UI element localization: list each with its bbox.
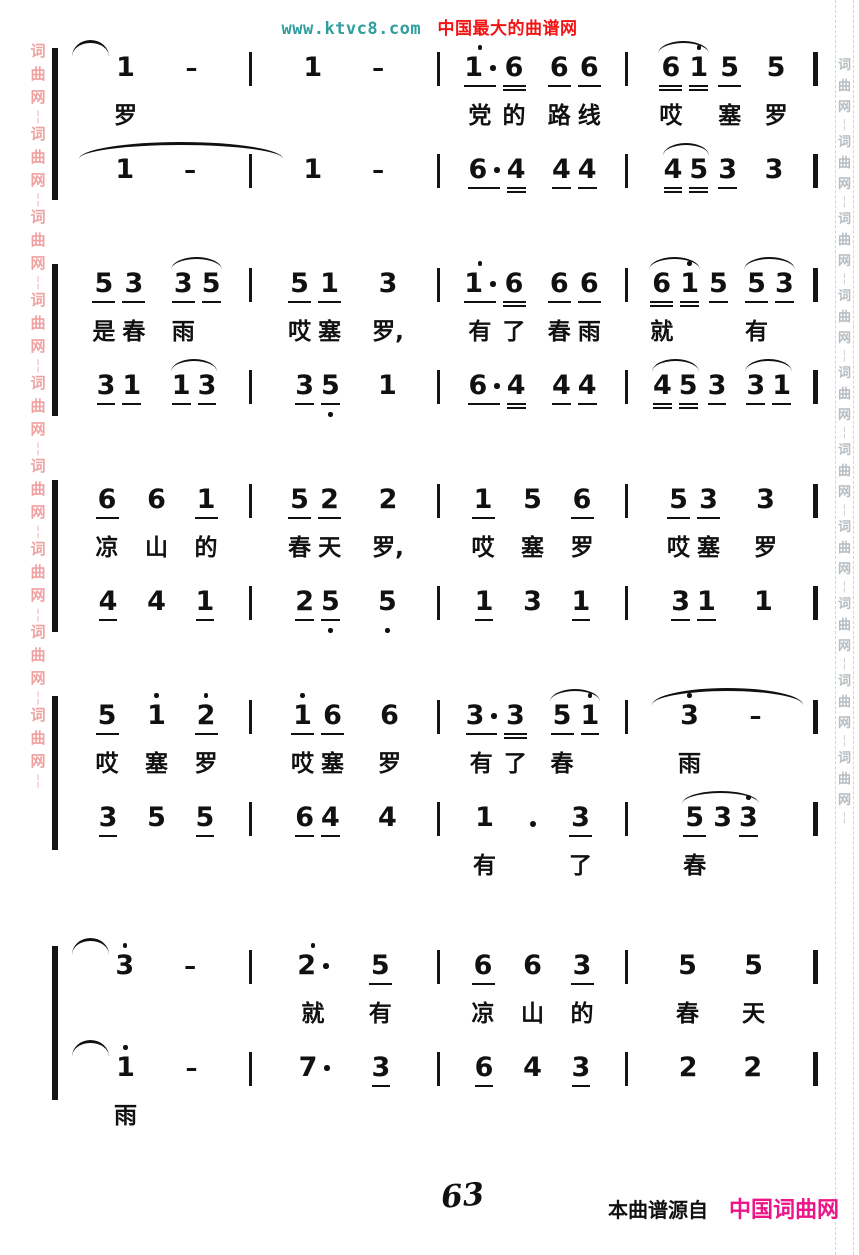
jianpu-note: 3 bbox=[775, 256, 794, 350]
jianpu-note: 5春 bbox=[683, 790, 706, 884]
slur-group: 5春3 3 bbox=[680, 790, 761, 884]
note-digit: 5 bbox=[689, 155, 708, 185]
watermark-char: 曲 bbox=[838, 153, 851, 174]
underline-zone bbox=[551, 731, 574, 740]
underline-zone bbox=[145, 731, 168, 740]
underline-zone bbox=[295, 617, 314, 626]
duration-underline bbox=[288, 517, 311, 520]
watermark-char: 曲 bbox=[838, 461, 851, 482]
lyric-syllable: 了 bbox=[503, 316, 526, 350]
note-digit bbox=[526, 803, 540, 833]
underline-zone bbox=[288, 515, 311, 524]
note-digit: 1 bbox=[572, 587, 591, 617]
underline-zone bbox=[521, 981, 544, 990]
measure: 1哎6塞6罗 bbox=[252, 688, 437, 782]
note-digit: 2 bbox=[320, 485, 339, 515]
underline-zone bbox=[680, 299, 699, 308]
duration-underline bbox=[679, 403, 698, 406]
note-number: 3 bbox=[739, 803, 758, 833]
duration-underline bbox=[503, 85, 526, 88]
beam-group: 1党6的 bbox=[461, 40, 528, 134]
measure: 6 4 4 bbox=[252, 790, 437, 884]
note-number: 5 bbox=[378, 587, 397, 617]
note-digit: 3 bbox=[713, 803, 732, 833]
note-number: 4 bbox=[523, 1053, 542, 1083]
note-number: 5 bbox=[523, 485, 542, 515]
measure: 5春3 3 bbox=[628, 790, 813, 884]
jianpu-note: 5 bbox=[378, 574, 397, 634]
underline-zone bbox=[295, 401, 314, 410]
octave-dot-above bbox=[300, 693, 305, 698]
jianpu-note: 5 bbox=[202, 256, 221, 350]
jianpu-note: 3塞 bbox=[697, 472, 720, 566]
jianpu-note: – bbox=[181, 938, 198, 1032]
jianpu-note: 6山 bbox=[145, 472, 168, 566]
jianpu-note: 5有 bbox=[369, 938, 392, 1032]
note-number: 1 bbox=[172, 371, 191, 401]
watermark-char: 词 bbox=[30, 538, 45, 561]
augmentation-dot bbox=[494, 383, 500, 389]
underline-zone bbox=[115, 981, 134, 990]
jianpu-note: 3 bbox=[739, 790, 758, 884]
duration-underline bbox=[504, 737, 527, 740]
lyric-syllable bbox=[528, 1100, 536, 1134]
note-number: 5 bbox=[98, 701, 117, 731]
duration-underline bbox=[572, 619, 591, 622]
underline-zone bbox=[318, 299, 341, 308]
jianpu-note: – bbox=[182, 1040, 199, 1134]
note-number: 3 bbox=[97, 371, 116, 401]
note-digit: 5 bbox=[290, 485, 309, 515]
note-number: 3 bbox=[718, 155, 737, 185]
watermark-char: 曲 bbox=[838, 307, 851, 328]
jianpu-note: 1 bbox=[572, 574, 591, 634]
note-number: 3 bbox=[372, 1053, 391, 1083]
lyric-syllable: 塞 bbox=[318, 316, 341, 350]
beam-group: 4 4 bbox=[549, 358, 600, 418]
watermark-separator: ¦ bbox=[842, 503, 846, 517]
note-digit: 1 bbox=[320, 269, 339, 299]
note-digit: 5 bbox=[371, 951, 390, 981]
lyric-syllable: 塞 bbox=[145, 748, 168, 782]
underline-zone bbox=[369, 83, 386, 92]
barline bbox=[813, 802, 818, 836]
dash-rest: – bbox=[184, 951, 194, 981]
underline-zone bbox=[754, 515, 777, 524]
measure: 6就1 5 5有3 bbox=[628, 256, 813, 350]
measure: 3 1 1 bbox=[628, 574, 813, 634]
note-number: 6 bbox=[468, 155, 487, 185]
octave-dot-above bbox=[478, 45, 483, 50]
upper-voice-line: 3 – 2就5有6凉6山3的5春5天 bbox=[64, 938, 818, 1032]
note-number: 6 bbox=[505, 269, 524, 299]
jianpu-note: 7 bbox=[299, 1040, 330, 1134]
note-digit: 3 bbox=[523, 587, 542, 617]
note-digit: 5 bbox=[321, 587, 340, 617]
duration-underline bbox=[503, 305, 526, 308]
duration-underline bbox=[472, 517, 495, 520]
footer-source-label: 本曲谱源自 bbox=[608, 1198, 708, 1222]
dash-rest: – bbox=[372, 155, 382, 185]
upper-voice-line: 5哎1塞2罗1哎6塞6罗3有3了5春1 3雨– bbox=[64, 688, 818, 782]
note-number: 1 bbox=[197, 485, 216, 515]
watermark-char: 网 bbox=[30, 86, 45, 109]
lyric-syllable: 的 bbox=[195, 532, 218, 566]
augmentation-dot bbox=[324, 1065, 330, 1071]
underline-zone bbox=[709, 299, 728, 308]
lyric-syllable bbox=[695, 100, 703, 134]
note-number: 5 bbox=[196, 803, 215, 833]
note-number: 5 bbox=[689, 155, 708, 185]
duration-underline bbox=[507, 191, 526, 194]
underline-zone bbox=[572, 1083, 591, 1092]
note-number: 5 bbox=[147, 803, 166, 833]
watermark-char: 词 bbox=[30, 455, 45, 478]
measure: 6凉6山1的 bbox=[64, 472, 249, 566]
underline-zone bbox=[96, 731, 119, 740]
watermark-char: 词 bbox=[30, 621, 45, 644]
note-digit: 5 bbox=[678, 951, 697, 981]
note-digit: 3 bbox=[671, 587, 690, 617]
jianpu-note: 4 bbox=[99, 574, 118, 634]
underline-zone bbox=[196, 833, 215, 842]
note-number: 4 bbox=[578, 371, 597, 401]
watermark-separator: ¦ bbox=[35, 358, 40, 372]
lyric-syllable bbox=[201, 850, 209, 884]
octave-dot-below bbox=[328, 628, 333, 633]
note-number: 2 bbox=[295, 587, 314, 617]
underline-zone bbox=[378, 401, 397, 410]
jianpu-note: 2就 bbox=[297, 938, 328, 1032]
note-number: 4 bbox=[99, 587, 118, 617]
lyric-syllable: 罗 bbox=[378, 748, 401, 782]
octave-dot-above bbox=[154, 693, 159, 698]
note-digit: 1 bbox=[147, 701, 166, 731]
jianpu-note: 4 bbox=[378, 790, 397, 884]
lyric-syllable bbox=[373, 100, 381, 134]
jianpu-note: 5哎 bbox=[667, 472, 690, 566]
note-digit: – bbox=[750, 701, 760, 731]
note-digit: 2 bbox=[297, 951, 328, 981]
dash-rest: – bbox=[186, 53, 196, 83]
watermark-char: 网 bbox=[838, 559, 851, 580]
note-number: 6 bbox=[523, 951, 542, 981]
note-digit: 3 bbox=[775, 269, 794, 299]
lyric-syllable: 有 bbox=[369, 998, 392, 1032]
note-digit: 1 bbox=[122, 371, 141, 401]
note-digit: 3 bbox=[124, 269, 143, 299]
underline-zone bbox=[196, 617, 215, 626]
lyric-syllable bbox=[383, 850, 391, 884]
dash-rest: – bbox=[750, 701, 760, 731]
slur-group: 6就1 bbox=[647, 256, 702, 350]
note-digit: 1 bbox=[303, 155, 322, 185]
duration-underline bbox=[472, 983, 495, 986]
jianpu-note: 5塞 bbox=[718, 40, 741, 134]
note-number: 3 bbox=[523, 587, 542, 617]
underline-zone bbox=[172, 401, 191, 410]
note-number: 5 bbox=[321, 371, 340, 401]
lyric-syllable: 罗 bbox=[195, 748, 218, 782]
duration-underline bbox=[708, 403, 727, 406]
note-number: 6 bbox=[550, 269, 569, 299]
underline-zone bbox=[708, 401, 727, 410]
jianpu-note: 3有 bbox=[466, 688, 497, 782]
music-system-3: 6凉6山1的5春2天2罗,1哎5塞6罗5哎3塞3罗4 4 1 2 5 5 1 3… bbox=[52, 472, 818, 634]
note-number: 5 bbox=[679, 371, 698, 401]
watermark-left: 词曲网¦词曲网¦词曲网¦词曲网¦词曲网¦词曲网¦词曲网¦词曲网¦词曲网¦ bbox=[27, 40, 49, 1247]
note-digit: 3 bbox=[699, 485, 718, 515]
duration-underline bbox=[99, 835, 118, 838]
note-digit: 1 bbox=[754, 587, 773, 617]
underline-zone bbox=[468, 401, 499, 410]
watermark-char: 网 bbox=[30, 169, 45, 192]
note-number: 1 bbox=[464, 269, 483, 299]
jianpu-note: 3 bbox=[713, 790, 732, 884]
watermark-char: 曲 bbox=[838, 76, 851, 97]
note-digit: 5 bbox=[94, 269, 113, 299]
lyric-syllable: 雨 bbox=[114, 1100, 137, 1134]
note-digit: 4 bbox=[99, 587, 118, 617]
jianpu-note: 5 bbox=[321, 358, 340, 418]
lyric-syllable: 雨 bbox=[578, 316, 601, 350]
note-number: 3 bbox=[699, 485, 718, 515]
jianpu-note: 5春 bbox=[288, 472, 311, 566]
lyric-syllable: 哎 bbox=[659, 100, 682, 134]
note-digit: 3 bbox=[174, 269, 193, 299]
underline-zone bbox=[321, 617, 340, 626]
watermark-separator: ¦ bbox=[842, 811, 846, 825]
note-digit: 1 bbox=[475, 587, 494, 617]
jianpu-note: 1 bbox=[581, 688, 600, 782]
dash-rest: – bbox=[184, 155, 194, 185]
measure: 3 1 1 3 bbox=[64, 358, 249, 418]
underline-zone bbox=[679, 401, 698, 410]
underline-zone bbox=[472, 981, 495, 990]
underline-zone bbox=[683, 833, 706, 842]
note-digit: 4 bbox=[507, 155, 526, 185]
note-digit: 6 bbox=[468, 155, 499, 185]
lyric-syllable: 哎 bbox=[667, 532, 690, 566]
lyric-syllable: 哎 bbox=[472, 532, 495, 566]
underline-zone bbox=[739, 833, 758, 842]
note-number: 2 bbox=[197, 701, 216, 731]
lyric-syllable: 凉 bbox=[96, 532, 119, 566]
duration-underline bbox=[295, 619, 314, 622]
jianpu-note: 6罗 bbox=[378, 688, 401, 782]
note-digit: – bbox=[184, 155, 194, 185]
lyric-syllable: 哎 bbox=[291, 748, 314, 782]
watermark-separator: ¦ bbox=[35, 773, 40, 787]
jianpu-note: 6山 bbox=[521, 938, 544, 1032]
lower-voice-line: 3 1 1 3 3 5 1 6 4 4 4 4 5 3 3 1 bbox=[64, 358, 818, 418]
underline-zone bbox=[678, 731, 701, 740]
underline-zone bbox=[521, 515, 544, 524]
measure: 3 5 5 bbox=[64, 790, 249, 884]
lyric-syllable: 罗 bbox=[114, 100, 137, 134]
underline-zone bbox=[524, 833, 541, 842]
watermark-char: 词 bbox=[838, 748, 851, 769]
jianpu-note: 1塞 bbox=[145, 688, 168, 782]
duration-underline bbox=[321, 835, 340, 838]
lyric-syllable: 天 bbox=[318, 532, 341, 566]
note-digit: 4 bbox=[378, 803, 397, 833]
duration-underline bbox=[507, 403, 526, 406]
jianpu-note: – bbox=[369, 40, 386, 134]
lower-voice-line: 4 4 1 2 5 5 1 3 1 3 1 1 bbox=[64, 574, 818, 634]
jianpu-note: 4 bbox=[578, 358, 597, 418]
note-digit: 4 bbox=[578, 371, 597, 401]
underline-zone bbox=[303, 185, 322, 194]
jianpu-note: 1有 bbox=[464, 256, 495, 350]
watermark-char: 网 bbox=[30, 252, 45, 275]
note-digit: 3 bbox=[708, 371, 727, 401]
slur-group: 3雨5 bbox=[169, 256, 224, 350]
barline bbox=[813, 52, 818, 86]
underline-zone bbox=[718, 185, 737, 194]
octave-dot-above bbox=[123, 1045, 128, 1050]
watermark-char: 词 bbox=[30, 704, 45, 727]
watermark-char: 曲 bbox=[30, 63, 45, 86]
jianpu-note: 3 bbox=[765, 142, 784, 202]
underline-zone bbox=[578, 299, 601, 308]
jianpu-note: 5 bbox=[709, 256, 728, 350]
watermark-char: 网 bbox=[30, 335, 45, 358]
watermark-char: 词 bbox=[838, 594, 851, 615]
note-number: 4 bbox=[664, 155, 683, 185]
duration-underline bbox=[746, 403, 765, 406]
underline-zone bbox=[746, 401, 765, 410]
slur-group: 5有3 bbox=[742, 256, 797, 350]
underline-zone bbox=[765, 83, 788, 92]
note-digit: 1 bbox=[197, 485, 216, 515]
system-bracket bbox=[52, 48, 58, 200]
note-digit: 6 bbox=[380, 701, 399, 731]
watermark-separator: ¦ bbox=[842, 195, 846, 209]
note-digit: 5 bbox=[553, 701, 572, 731]
watermark-char: 网 bbox=[838, 251, 851, 272]
lyric-syllable: 春 bbox=[288, 532, 311, 566]
duration-underline bbox=[464, 301, 495, 304]
jianpu-note: 2 bbox=[743, 1040, 762, 1134]
duration-underline bbox=[689, 89, 708, 92]
jianpu-note: 4 bbox=[552, 358, 571, 418]
jianpu-note: 6春 bbox=[548, 256, 571, 350]
note-digit: 3 bbox=[466, 701, 497, 731]
duration-underline bbox=[295, 403, 314, 406]
duration-underline bbox=[195, 733, 218, 736]
measure: 5哎1塞3罗, bbox=[252, 256, 437, 350]
note-digit: 2 bbox=[743, 1053, 762, 1083]
note-number: 1 bbox=[147, 701, 166, 731]
watermark-separator: ¦ bbox=[35, 109, 40, 123]
watermark-char: 词 bbox=[838, 55, 851, 76]
underline-zone bbox=[503, 299, 526, 308]
slur-group: 4 5 bbox=[650, 358, 701, 418]
note-number: 1 bbox=[464, 53, 483, 83]
underline-zone bbox=[297, 981, 328, 990]
note-digit: 1 bbox=[303, 53, 322, 83]
lyric-syllable bbox=[586, 748, 594, 782]
jianpu-note: 3 bbox=[671, 574, 690, 634]
underline-zone bbox=[552, 185, 571, 194]
duration-underline bbox=[680, 301, 699, 304]
lyric-syllable bbox=[686, 316, 694, 350]
music-system-5: 3 – 2就5有6凉6山3的5春5天1雨– 7 3 6 4 3 2 2 bbox=[52, 938, 818, 1134]
jianpu-note: 3了 bbox=[569, 790, 592, 884]
jianpu-note: 3 bbox=[523, 574, 542, 634]
jianpu-note: 5 bbox=[196, 790, 215, 884]
jianpu-note: 3罗 bbox=[754, 472, 777, 566]
watermark-separator: ¦ bbox=[842, 272, 846, 286]
lyric-syllable: 是 bbox=[92, 316, 115, 350]
watermark-char: 网 bbox=[30, 418, 45, 441]
underline-zone bbox=[578, 83, 601, 92]
lower-voice-line: 1 – 1 – 6 4 4 4 4 5 3 3 bbox=[64, 142, 818, 202]
lyric-syllable bbox=[121, 998, 129, 1032]
note-number: 4 bbox=[507, 371, 526, 401]
underline-zone bbox=[99, 617, 118, 626]
note-digit: 2 bbox=[197, 701, 216, 731]
note-number: 3 bbox=[124, 269, 143, 299]
note-number: 1 bbox=[320, 269, 339, 299]
underline-zone bbox=[697, 515, 720, 524]
note-digit: 1 bbox=[474, 485, 493, 515]
watermark-char: 曲 bbox=[30, 561, 45, 584]
duration-underline bbox=[97, 403, 116, 406]
note-number: 1 bbox=[680, 269, 699, 299]
note-digit: 5 bbox=[378, 587, 397, 617]
lower-voice-line: 3 5 5 6 4 4 1有 3了5春3 3 bbox=[64, 790, 818, 884]
underline-zone bbox=[97, 401, 116, 410]
music-system-1: 1罗– 1 – 1党6的6路6线6哎1 5塞5罗1 – 1 – 6 4 4 4 … bbox=[52, 40, 818, 202]
note-digit: 1 bbox=[116, 53, 135, 83]
duration-underline bbox=[653, 403, 672, 406]
beam-group: 5哎3塞 bbox=[664, 472, 723, 566]
lyric-syllable: 哎 bbox=[96, 748, 119, 782]
note-digit: 6 bbox=[295, 803, 314, 833]
duration-underline bbox=[664, 191, 683, 194]
note-digit: 5 bbox=[196, 803, 215, 833]
note-number: 1 bbox=[475, 803, 494, 833]
note-digit: 1 bbox=[689, 53, 708, 83]
octave-dot-zone bbox=[328, 626, 333, 634]
watermark-char: 网 bbox=[838, 97, 851, 118]
lyric-syllable: 路 bbox=[548, 100, 571, 134]
note-digit: 1 bbox=[464, 269, 495, 299]
note-digit: 5 bbox=[747, 269, 766, 299]
underline-zone bbox=[676, 981, 699, 990]
beam-group: 1哎6塞 bbox=[288, 688, 347, 782]
duration-underline bbox=[772, 403, 791, 406]
beam-group: 5春2天 bbox=[285, 472, 344, 566]
note-digit: 1 bbox=[378, 371, 397, 401]
jianpu-note: 1 bbox=[689, 40, 708, 134]
note-number: 1 bbox=[378, 371, 397, 401]
page-number: 63 bbox=[440, 1176, 486, 1216]
beam-group: 3 1 bbox=[668, 574, 719, 634]
watermark-char: 词 bbox=[30, 289, 45, 312]
beam-group: 5哎1塞 bbox=[285, 256, 344, 350]
note-number: 1 bbox=[303, 53, 322, 83]
sheet-music-score: 1罗– 1 – 1党6的6路6线6哎1 5塞5罗1 – 1 – 6 4 4 4 … bbox=[52, 40, 818, 1188]
underline-zone bbox=[464, 299, 495, 308]
note-number: 3 bbox=[379, 269, 398, 299]
underline-zone bbox=[295, 833, 314, 842]
lyric-syllable: 罗 bbox=[765, 100, 788, 134]
footer-source-site: 中国词曲网 bbox=[729, 1198, 839, 1223]
note-digit: 3 bbox=[115, 951, 134, 981]
